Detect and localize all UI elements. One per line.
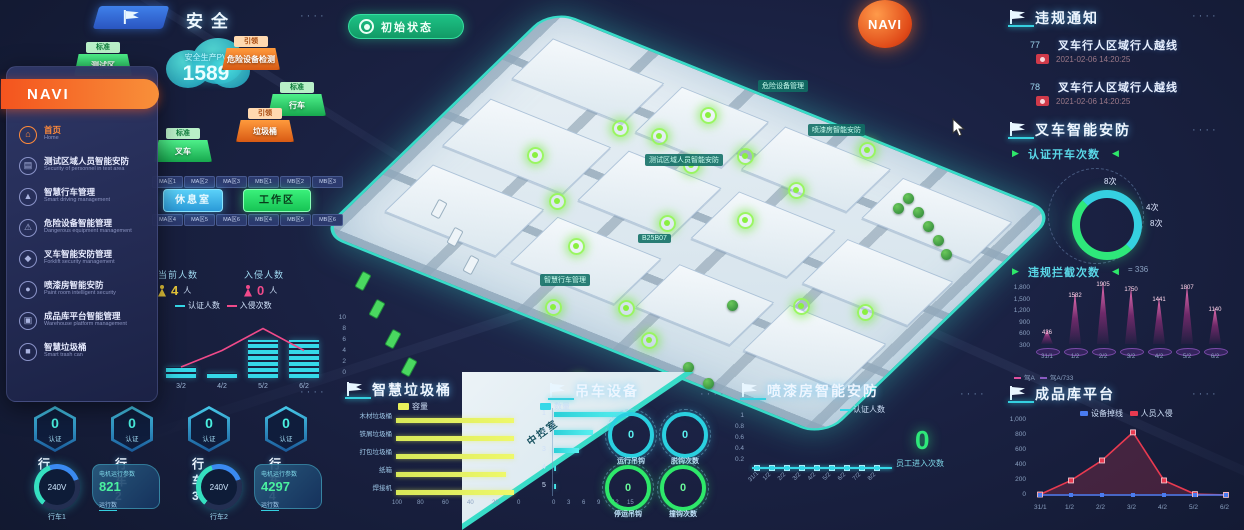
nav-item-sub: Home — [44, 135, 61, 142]
vehicle-hex-4: 0认证 — [265, 406, 307, 452]
map-beacon-marker[interactable] — [527, 147, 544, 164]
spike-wrap — [1038, 282, 1056, 354]
nav-item-label: 测试区域人员智能安防 — [44, 156, 129, 166]
dashboard-stage: 危险设备管理喷漆房智能安防测试区域人员智能安防B25B07智慧行车管理智慧垃圾桶… — [0, 0, 1244, 530]
section-dots: ···· — [700, 388, 727, 400]
ring-value: 0 — [680, 482, 686, 494]
hex-value: 0 — [265, 415, 307, 431]
legend-label: 数量 — [554, 402, 570, 411]
header-dots: ···· — [300, 10, 327, 22]
capacity-bar — [396, 436, 514, 441]
count-bar — [554, 448, 579, 453]
legend-chip-yellow — [398, 403, 409, 410]
legend-label: 入侵次数 — [240, 301, 272, 310]
spike-value-label: 1582 — [1062, 293, 1088, 299]
y-axis-tick: 400 — [1000, 461, 1026, 468]
stat-value: 4 — [171, 283, 178, 298]
violation-time: 2021-02-06 14:20:25 — [1056, 55, 1130, 64]
nav-item-icon: ⚠ — [19, 219, 37, 237]
run-param-card-1: 电机运行参数 821 运行数 — [92, 464, 160, 509]
card-value: 821 — [99, 479, 153, 494]
x-axis-tick: 1/2 — [1062, 354, 1088, 360]
map-beacon-marker[interactable] — [545, 299, 562, 316]
map-beacon-marker[interactable] — [612, 120, 629, 137]
factory-building — [691, 191, 836, 277]
intercept-count-label: 违规拦截次数 — [1028, 264, 1100, 280]
hex-value: 0 — [34, 415, 76, 431]
crane-ring-1: 0 运行吊钩 — [608, 412, 654, 458]
violation-id: 78 — [1030, 82, 1040, 92]
x-axis-tick: 5/2 — [1174, 354, 1200, 360]
panel-title-text: 成品库平台 — [1035, 384, 1115, 404]
hex-tag: 认证 — [265, 433, 307, 443]
capacity-bar — [396, 454, 514, 459]
ribbon-label: 标准 — [166, 128, 200, 139]
green-truck-icon — [354, 271, 371, 292]
crane-ring-2: 0 脱钩次数 — [662, 412, 708, 458]
factory-building — [802, 239, 953, 326]
header-flag-tag — [93, 6, 170, 29]
map-beacon-marker[interactable] — [549, 193, 566, 210]
paint-panel-title: 喷漆房智能安防 — [740, 381, 879, 401]
map-beacon-marker[interactable] — [700, 107, 717, 124]
map-beacon-marker[interactable] — [788, 182, 805, 199]
trash-panel-title: 智慧垃圾桶 — [345, 380, 452, 400]
nav-item-texts: 智慧行车管理Smart driving management — [44, 187, 110, 204]
camera-icon — [1036, 54, 1049, 64]
y-axis-tick: 0.8 — [722, 423, 744, 430]
ribbon-label: 标准 — [280, 82, 314, 93]
panel-title-text: 叉车智能安防 — [1035, 120, 1131, 140]
tree-icon — [923, 221, 934, 232]
count-bar — [554, 430, 593, 435]
green-truck-icon — [384, 329, 401, 350]
y-axis-tick: 0.6 — [722, 434, 744, 441]
zone-tag[interactable]: MB区2 — [280, 176, 311, 188]
card-label: 运行数 — [99, 500, 117, 511]
row-number: 3 — [542, 446, 546, 453]
intercept-legend: 驾A 驾A/733 — [1014, 372, 1073, 382]
nav-item-label: 叉车智能安防管理 — [44, 249, 115, 259]
crane-panel-title: 吊车设备 — [548, 381, 639, 401]
button-label: 危险设备检测 — [222, 48, 280, 70]
spike-value-label: 1140 — [1202, 307, 1228, 313]
x-axis-tick: 31/1 — [1034, 354, 1060, 360]
y-axis-tick: 900 — [1004, 319, 1030, 326]
tree-icon — [727, 300, 738, 311]
camera-icon — [1036, 96, 1049, 106]
x-axis-tick: 2/2 — [1090, 354, 1116, 360]
page-title: 安全 — [186, 7, 236, 32]
violation-spike — [1123, 287, 1139, 344]
y-axis-tick: 300 — [1004, 342, 1030, 349]
axis-tick: 20 — [492, 500, 499, 506]
nav-item-sub: Dangerous equipment management — [44, 228, 132, 235]
gauge-name: 行车1 — [34, 512, 80, 522]
area-combo-chart: 3/24/25/26/21086420 — [150, 312, 346, 392]
spike-wrap — [1206, 282, 1224, 354]
panel-dots: ···· — [1192, 388, 1219, 400]
legend-dash-cyan — [840, 409, 850, 411]
flag-icon — [1008, 10, 1028, 26]
legend-dash-pink — [1014, 377, 1021, 379]
nav-item-2[interactable]: ▤测试区域人员智能安防Security of personnel in test… — [19, 156, 151, 182]
count-bar — [554, 484, 556, 489]
ribbon-label: 标准 — [86, 42, 120, 53]
violation-spike — [1179, 285, 1195, 344]
hex-tag: 认证 — [111, 433, 153, 443]
axis-tick: 0 — [517, 500, 520, 506]
nav-item-texts: 智慧垃圾桶Smart trash can — [44, 342, 87, 359]
map-beacon-marker[interactable] — [859, 142, 876, 159]
zone-tag[interactable]: MB区3 — [312, 176, 343, 188]
nav-item-sub: Smart driving management — [44, 197, 110, 204]
section-dots: ···· — [300, 386, 327, 398]
donut-label: 4次 — [1146, 202, 1158, 213]
flag-icon — [548, 383, 568, 399]
nav-item-texts: 危险设备智能管理Dangerous equipment management — [44, 218, 132, 235]
nav-item-sub: Smart trash can — [44, 352, 87, 359]
current-people-stat: 当前人数 4 人 — [158, 268, 232, 298]
spike-value-label: 1441 — [1146, 297, 1172, 303]
nav-item-icon: ▣ — [19, 312, 37, 330]
iso-button-danger-device[interactable]: 引领 危险设备检测 — [222, 36, 280, 70]
spike-wrap — [1178, 282, 1196, 354]
spike-value-label: 436 — [1034, 330, 1060, 336]
play-arrow-left-icon: ◀ — [1112, 148, 1119, 159]
hex-value: 0 — [111, 415, 153, 431]
nav-item-7[interactable]: ▣成品库平台智能管理Warehouse platform management — [19, 311, 151, 337]
nav-item-4[interactable]: ⚠危险设备智能管理Dangerous equipment management — [19, 218, 151, 244]
intrusion-people-stat: 入侵人数 0 人 — [244, 268, 318, 298]
iso-button-trash[interactable]: 引领 垃圾桶 — [236, 108, 294, 142]
nav-item-icon: ■ — [19, 343, 37, 361]
ring-value: 0 — [628, 429, 634, 441]
card-label: 运行数 — [261, 500, 279, 511]
y-axis-tick: 1 — [722, 412, 744, 419]
panel-title-text: 违规通知 — [1035, 8, 1099, 28]
voltage-gauge-2: 240V 行车2 — [196, 464, 242, 510]
run-param-card-2: 电机运行参数 4297 运行数 — [254, 464, 322, 509]
factory-building — [861, 178, 1012, 262]
nav-item-1[interactable]: ⌂首页Home — [19, 125, 151, 151]
x-axis-tick: 31/1 — [1034, 504, 1047, 511]
nav-item-texts: 首页Home — [44, 125, 61, 142]
panel-title-text: 吊车设备 — [575, 381, 639, 401]
count-bar — [554, 466, 556, 471]
x-axis-tick: 2/2 — [1096, 504, 1105, 511]
nav-item-label: 智慧行车管理 — [44, 187, 110, 197]
nav-item-sub: Warehouse platform management — [44, 321, 127, 328]
green-truck-icon — [368, 299, 385, 320]
crane-ring-3: 0 停运吊钩 — [605, 465, 651, 511]
x-axis-tick: 6/2 — [1202, 354, 1228, 360]
x-axis-tick: 4/2 — [1146, 354, 1172, 360]
x-axis-tick: 1/2 — [1065, 504, 1074, 511]
spike-value-label: 1905 — [1090, 282, 1116, 288]
nav-item-texts: 喷漆房智能安防Paint room intelligent security — [44, 280, 116, 297]
zone-tag[interactable]: MA区3 — [216, 176, 247, 188]
y-axis-tick: 600 — [1004, 330, 1030, 337]
ring-value: 0 — [682, 429, 688, 441]
spike-value-label: 1750 — [1118, 287, 1144, 293]
map-beacon-marker[interactable] — [641, 332, 658, 349]
ring-value: 0 — [625, 482, 631, 494]
nav-item-6[interactable]: ●喷漆房智能安防Paint room intelligent security — [19, 280, 151, 306]
zone-tag[interactable]: MB区1 — [248, 176, 279, 188]
trash-category-label: 木材垃圾桶 — [344, 410, 392, 420]
trash-category-label: 焊接机 — [344, 482, 392, 492]
initial-status-button[interactable]: 初始状态 — [348, 14, 464, 39]
flag-icon — [1008, 122, 1028, 138]
hex-tag: 认证 — [188, 433, 230, 443]
axis-line — [552, 408, 553, 496]
gauge-value: 240V — [39, 469, 75, 505]
certified-drive-donut — [1072, 190, 1142, 260]
map-area-label: 测试区域人员智能安防 — [645, 154, 723, 166]
button-label: 叉车 — [154, 140, 212, 162]
legend-label: 驾A/733 — [1050, 375, 1074, 382]
nav-item-label: 智慧垃圾桶 — [44, 342, 87, 352]
flag-icon — [740, 383, 760, 399]
panel-title-text: 喷漆房智能安防 — [767, 381, 879, 401]
nav-item-texts: 叉车智能安防管理Forklift security management — [44, 249, 115, 266]
card-value: 4297 — [261, 479, 315, 494]
stat-unit: 人 — [269, 285, 277, 296]
hex-tag: 认证 — [34, 433, 76, 443]
button-label: 垃圾桶 — [236, 120, 294, 142]
zone-tag[interactable]: MB区4 — [248, 214, 279, 226]
employee-entry-label: 员工进入次数 — [896, 458, 944, 469]
forklift-panel-title: 叉车智能安防 — [1008, 120, 1131, 140]
vehicle-hex-2: 0认证 — [111, 406, 153, 452]
zone-tag[interactable]: MA区5 — [184, 214, 215, 226]
map-area-label: 危险设备管理 — [758, 80, 808, 92]
vehicle-hex-1: 0认证 — [34, 406, 76, 452]
nav-item-5[interactable]: ◆叉车智能安防管理Forklift security management — [19, 249, 151, 275]
trash-category-label: 打包垃圾桶 — [344, 446, 392, 456]
row-number: 2 — [542, 428, 546, 435]
violation-spike — [1095, 282, 1111, 344]
violation-text: 叉车行人区域行人越线 — [1058, 37, 1178, 53]
donut-label: 8次 — [1104, 176, 1116, 187]
violation-text: 叉车行人区域行人越线 — [1058, 79, 1178, 95]
panel-dots: ···· — [1192, 124, 1219, 136]
employee-entry-count: 0 — [915, 425, 929, 456]
nav-item-label: 成品库平台智能管理 — [44, 311, 127, 321]
nav-item-label: 危险设备智能管理 — [44, 218, 132, 228]
map-beacon-marker[interactable] — [568, 238, 585, 255]
nav-item-8[interactable]: ■智慧垃圾桶Smart trash can — [19, 342, 151, 368]
zone-tag[interactable]: MA区6 — [216, 214, 247, 226]
legend-label: 容量 — [412, 402, 428, 411]
row-number: 4 — [542, 464, 546, 471]
axis-tick: 6 — [582, 500, 585, 506]
certified-drive-label: 认证开车次数 — [1028, 146, 1100, 162]
tree-icon — [933, 235, 944, 246]
stat-label: 入侵人数 — [244, 268, 318, 281]
capacity-bar — [396, 472, 506, 477]
panel-title-text: 智慧垃圾桶 — [372, 380, 452, 400]
nav-item-3[interactable]: ▲智慧行车管理Smart driving management — [19, 187, 151, 213]
y-axis-tick: 800 — [1000, 431, 1026, 438]
x-axis-tick: 6/2 — [1220, 504, 1229, 511]
violation-spike — [1067, 293, 1083, 344]
section-dots: ···· — [960, 388, 987, 400]
nav-item-icon: ▲ — [19, 188, 37, 206]
capacity-bar — [396, 490, 514, 495]
x-axis-tick: 5/2 — [1189, 504, 1198, 511]
card-title: 电机运行参数 — [261, 469, 315, 478]
flat-line — [752, 467, 892, 469]
stat-label: 当前人数 — [158, 268, 232, 281]
work-area-button[interactable]: 工作区 — [243, 189, 311, 212]
axis-tick: 100 — [392, 500, 402, 506]
axis-tick: 60 — [442, 500, 449, 506]
map-area-label: 智慧行车管理 — [540, 274, 590, 286]
play-arrow-icon: ▶ — [1012, 148, 1019, 159]
factory-building — [741, 127, 891, 213]
y-axis-tick: 1,800 — [1004, 284, 1030, 291]
map-area-label: 喷漆房智能安防 — [808, 124, 865, 136]
map-beacon-marker[interactable] — [618, 300, 635, 317]
gauge-value: 240V — [201, 469, 237, 505]
play-arrow-icon: ▶ — [1012, 266, 1019, 277]
ribbon-label: 引领 — [234, 36, 268, 47]
intercept-badge: = 336 — [1128, 265, 1148, 274]
axis-tick: 0 — [552, 500, 555, 506]
tree-icon — [941, 249, 952, 260]
map-beacon-marker[interactable] — [651, 128, 668, 145]
nav-item-label: 首页 — [44, 125, 61, 135]
iso-button-forklift[interactable]: 标准 叉车 — [154, 128, 212, 162]
map-beacon-marker[interactable] — [737, 212, 754, 229]
combo-chart-legend: 认证人数 入侵次数 — [175, 300, 272, 311]
hex-value: 0 — [188, 415, 230, 431]
status-button-label: 初始状态 — [381, 19, 433, 35]
violation-time: 2021-02-06 14:20:25 — [1056, 97, 1130, 106]
y-axis-tick: 1,200 — [1004, 307, 1030, 314]
person-icon-pink — [244, 285, 252, 297]
nav-item-icon: ◆ — [19, 250, 37, 268]
x-axis-tick: 3/2 — [1127, 504, 1136, 511]
zone-tag[interactable]: MB区6 — [312, 214, 343, 226]
nav-item-sub: Forklift security management — [44, 259, 115, 266]
violation-spike — [1151, 297, 1167, 344]
factory-building — [511, 217, 662, 304]
rest-room-button[interactable]: 休息室 — [163, 189, 223, 212]
map-beacon-marker[interactable] — [857, 304, 874, 321]
radio-icon — [359, 19, 374, 34]
capacity-bar — [396, 418, 514, 423]
crane-ring-4: 0 撞钩次数 — [660, 465, 706, 511]
navi-logo-badge[interactable]: NAVI — [858, 0, 912, 48]
legend-label: 认证人数 — [188, 301, 220, 310]
intercept-badge-value: 336 — [1135, 265, 1148, 274]
x-axis-tick: 3/2 — [1118, 354, 1144, 360]
row-number: 1 — [542, 410, 546, 417]
legend-label: 认证人数 — [853, 405, 885, 414]
ribbon-label: 引领 — [248, 108, 282, 119]
violation-id: 77 — [1030, 40, 1040, 50]
nav-item-sub: Paint room intelligent security — [44, 290, 116, 297]
x-axis-tick: 4/2 — [1158, 504, 1167, 511]
card-title: 电机运行参数 — [99, 469, 153, 478]
trash-category-label: 铁屑垃圾桶 — [344, 428, 392, 438]
tree-icon — [893, 203, 904, 214]
factory-building — [384, 165, 544, 257]
ring-label: 撞钩次数 — [648, 509, 718, 519]
green-truck-icon — [400, 357, 417, 378]
person-icon-yellow — [158, 285, 166, 297]
gauge-name: 行车2 — [196, 512, 242, 522]
nav-item-texts: 测试区域人员智能安防Security of personnel in test … — [44, 156, 129, 173]
legend-dash-purple — [1040, 377, 1047, 379]
donut-label: 8次 — [1150, 218, 1162, 229]
legend-dash-pink — [227, 305, 237, 307]
nav-item-icon: ▤ — [19, 157, 37, 175]
nav-item-label: 喷漆房智能安防 — [44, 280, 116, 290]
axis-tick: 9 — [597, 500, 600, 506]
spike-wrap — [1094, 282, 1112, 354]
map-beacon-marker[interactable] — [793, 298, 810, 315]
trash-category-label: 纸箱 — [344, 464, 392, 474]
y-axis-tick: 600 — [1000, 446, 1026, 453]
flag-icon — [122, 10, 142, 26]
y-axis-tick: 0.4 — [722, 445, 744, 452]
map-beacon-marker[interactable] — [659, 215, 676, 232]
trash-legend-left: 容量 — [398, 401, 428, 412]
stat-value: 0 — [257, 283, 264, 298]
nav-item-icon: ● — [19, 281, 37, 299]
stat-unit: 人 — [183, 285, 191, 296]
tree-icon — [913, 207, 924, 218]
paint-legend: 认证人数 — [840, 404, 885, 415]
y-axis-tick: 0 — [1000, 491, 1026, 498]
factory-building — [511, 38, 664, 123]
spike-wrap — [1150, 282, 1168, 354]
mouse-cursor — [952, 118, 966, 138]
intrusion-line — [150, 312, 346, 392]
flag-icon — [1008, 386, 1028, 402]
factory-building — [635, 264, 774, 345]
violations-panel-title: 违规通知 — [1008, 8, 1099, 28]
y-axis-tick: 0.2 — [722, 456, 744, 463]
zone-tag[interactable]: MB区5 — [280, 214, 311, 226]
y-axis-tick: 200 — [1000, 476, 1026, 483]
map-area-label: B25B07 — [638, 234, 671, 243]
tree-icon — [903, 193, 914, 204]
axis-tick: 80 — [417, 500, 424, 506]
row-number: 5 — [542, 482, 546, 489]
map-beacon-marker[interactable] — [737, 148, 754, 165]
zone-tag[interactable]: MA区2 — [184, 176, 215, 188]
axis-tick: 40 — [467, 500, 474, 506]
panel-dots: ···· — [1192, 10, 1219, 22]
legend-label: 驾A — [1024, 375, 1034, 382]
vehicle-hex-3: 0认证 — [188, 406, 230, 452]
voltage-gauge-1: 240V 行车1 — [34, 464, 80, 510]
flag-icon — [345, 382, 365, 398]
warehouse-panel-title: 成品库平台 — [1008, 384, 1115, 404]
y-axis-tick: 1,000 — [1000, 416, 1026, 423]
nav-menu-header: NAVI — [1, 79, 159, 109]
spike-value-label: 1807 — [1174, 285, 1200, 291]
axis-tick: 3 — [567, 500, 570, 506]
play-arrow-left-icon: ◀ — [1112, 266, 1119, 277]
y-axis-tick: 1,500 — [1004, 296, 1030, 303]
nav-item-icon: ⌂ — [19, 126, 37, 144]
